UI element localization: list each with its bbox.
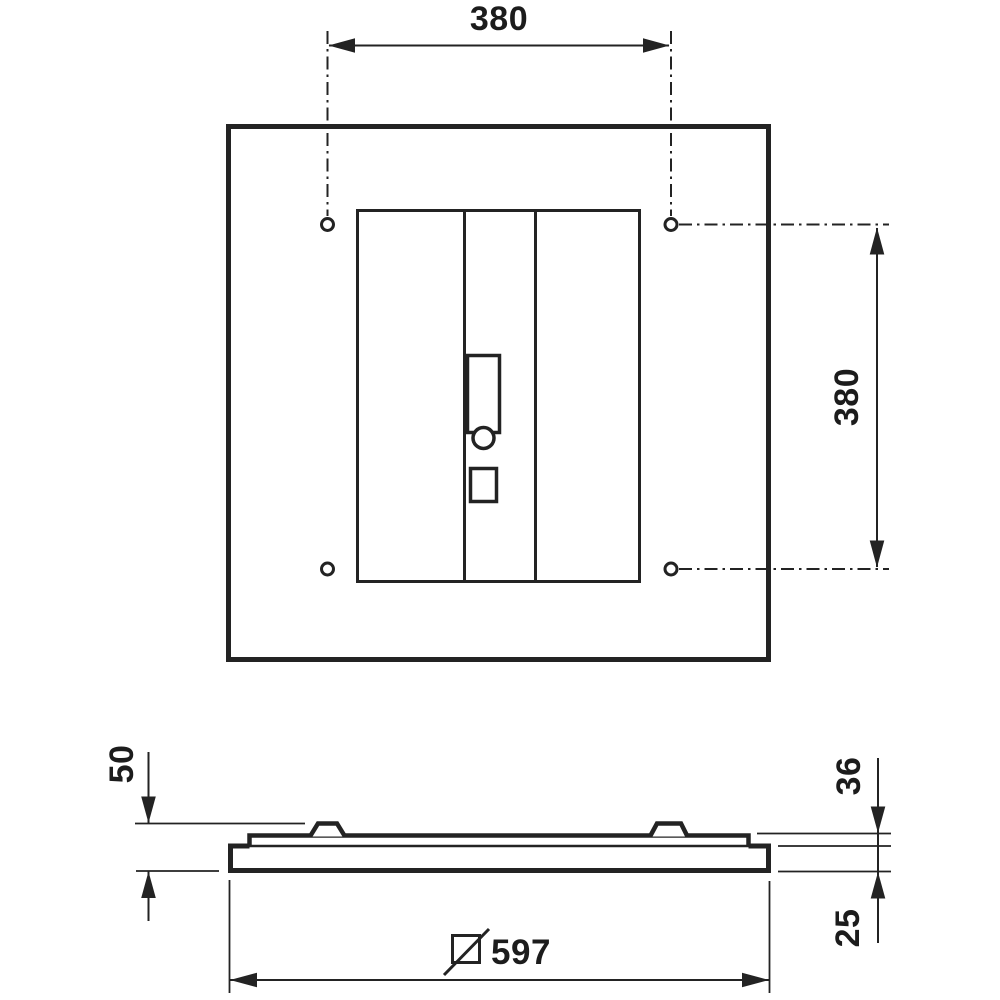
mounting-clip-right [650,824,688,837]
arrowhead-right [742,973,769,988]
arrowhead-left [230,973,257,988]
dimension-label: 597 [491,933,551,972]
side-profile-view: 50 36 25 597 [103,745,891,993]
arrowhead-left [329,38,356,53]
mounting-hole-top-right [665,219,677,231]
arrowhead-up [871,872,886,899]
dimension-total-height: 50 [103,745,305,921]
arrowhead-down [870,541,885,568]
connector-box [471,469,497,502]
arrowhead-down [871,807,886,834]
dimension-label-lower: 25 [829,909,867,948]
drawing-canvas: 380 380 50 [0,0,1000,1000]
dimension-drawing: 380 380 50 [0,0,1000,1000]
cable-entry-hole [473,428,494,449]
dimension-hole-spacing-y: 380 [828,228,884,568]
arrowhead-up [141,872,156,899]
mounting-hole-top-left [322,219,334,231]
top-view: 380 380 [229,0,890,660]
driver-box [468,356,500,433]
slashed-square-icon [444,929,489,975]
dimension-width: 597 [230,880,770,993]
dimension-upper-height: 36 25 [757,757,891,948]
dimension-hole-spacing-x: 380 [329,0,670,53]
arrowhead-down [141,797,156,824]
dimension-label-upper: 36 [830,757,868,796]
dimension-label: 380 [828,368,866,426]
mounting-clip-left [310,824,345,837]
housing-lower-plate [231,846,769,871]
dimension-label: 380 [470,0,528,38]
square-symbol-box [453,936,480,963]
mounting-hole-bottom-right [665,563,677,575]
mounting-hole-bottom-left [322,563,334,575]
dimension-label: 50 [103,745,141,784]
arrowhead-right [643,38,670,53]
arrowhead-up [870,228,885,255]
